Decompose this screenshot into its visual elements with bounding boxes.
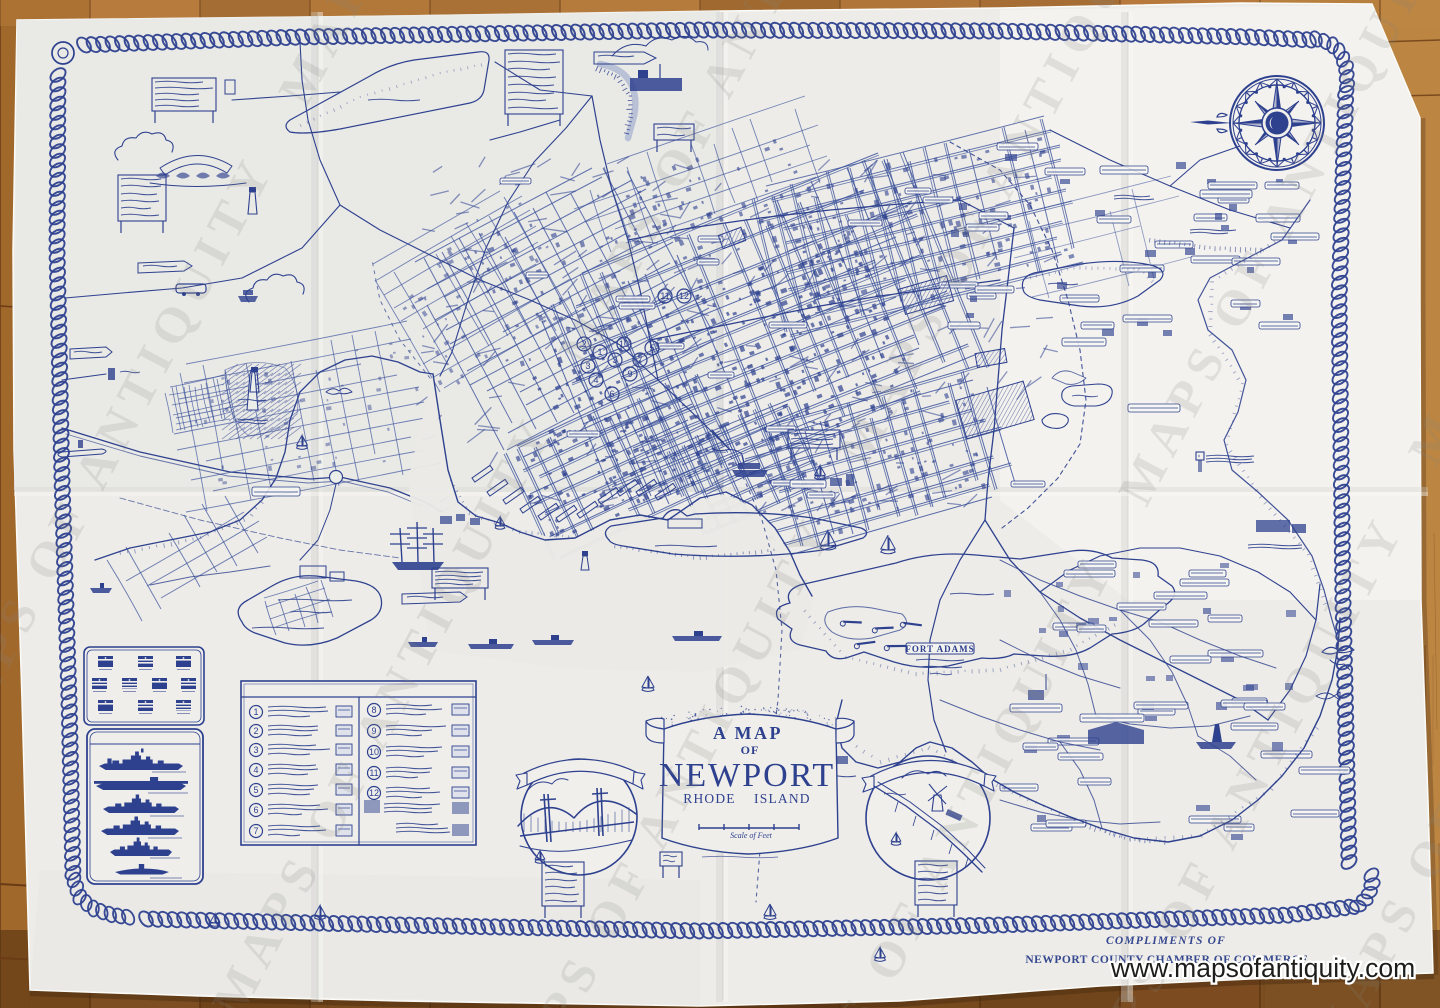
svg-text:11: 11 [660, 291, 669, 301]
svg-text:www.mapsofantiquity.com: www.mapsofantiquity.com [1110, 953, 1415, 983]
svg-text:12: 12 [679, 291, 689, 301]
svg-text:3: 3 [253, 745, 258, 755]
svg-text:2: 2 [253, 726, 258, 736]
svg-text:4: 4 [253, 765, 258, 775]
svg-text:5: 5 [253, 785, 258, 795]
svg-text:OF: OF [741, 743, 760, 757]
svg-text:5: 5 [649, 343, 654, 353]
svg-text:10: 10 [619, 339, 629, 349]
svg-text:7: 7 [253, 826, 258, 836]
svg-text:6: 6 [609, 389, 614, 399]
svg-text:9: 9 [627, 369, 632, 379]
svg-text:7: 7 [637, 355, 642, 365]
svg-text:1: 1 [253, 707, 258, 717]
svg-text:6: 6 [253, 805, 258, 815]
svg-text:FORT ADAMS: FORT ADAMS [905, 644, 974, 654]
svg-text:Scale of Feet: Scale of Feet [730, 831, 773, 840]
svg-text:3: 3 [612, 355, 617, 365]
